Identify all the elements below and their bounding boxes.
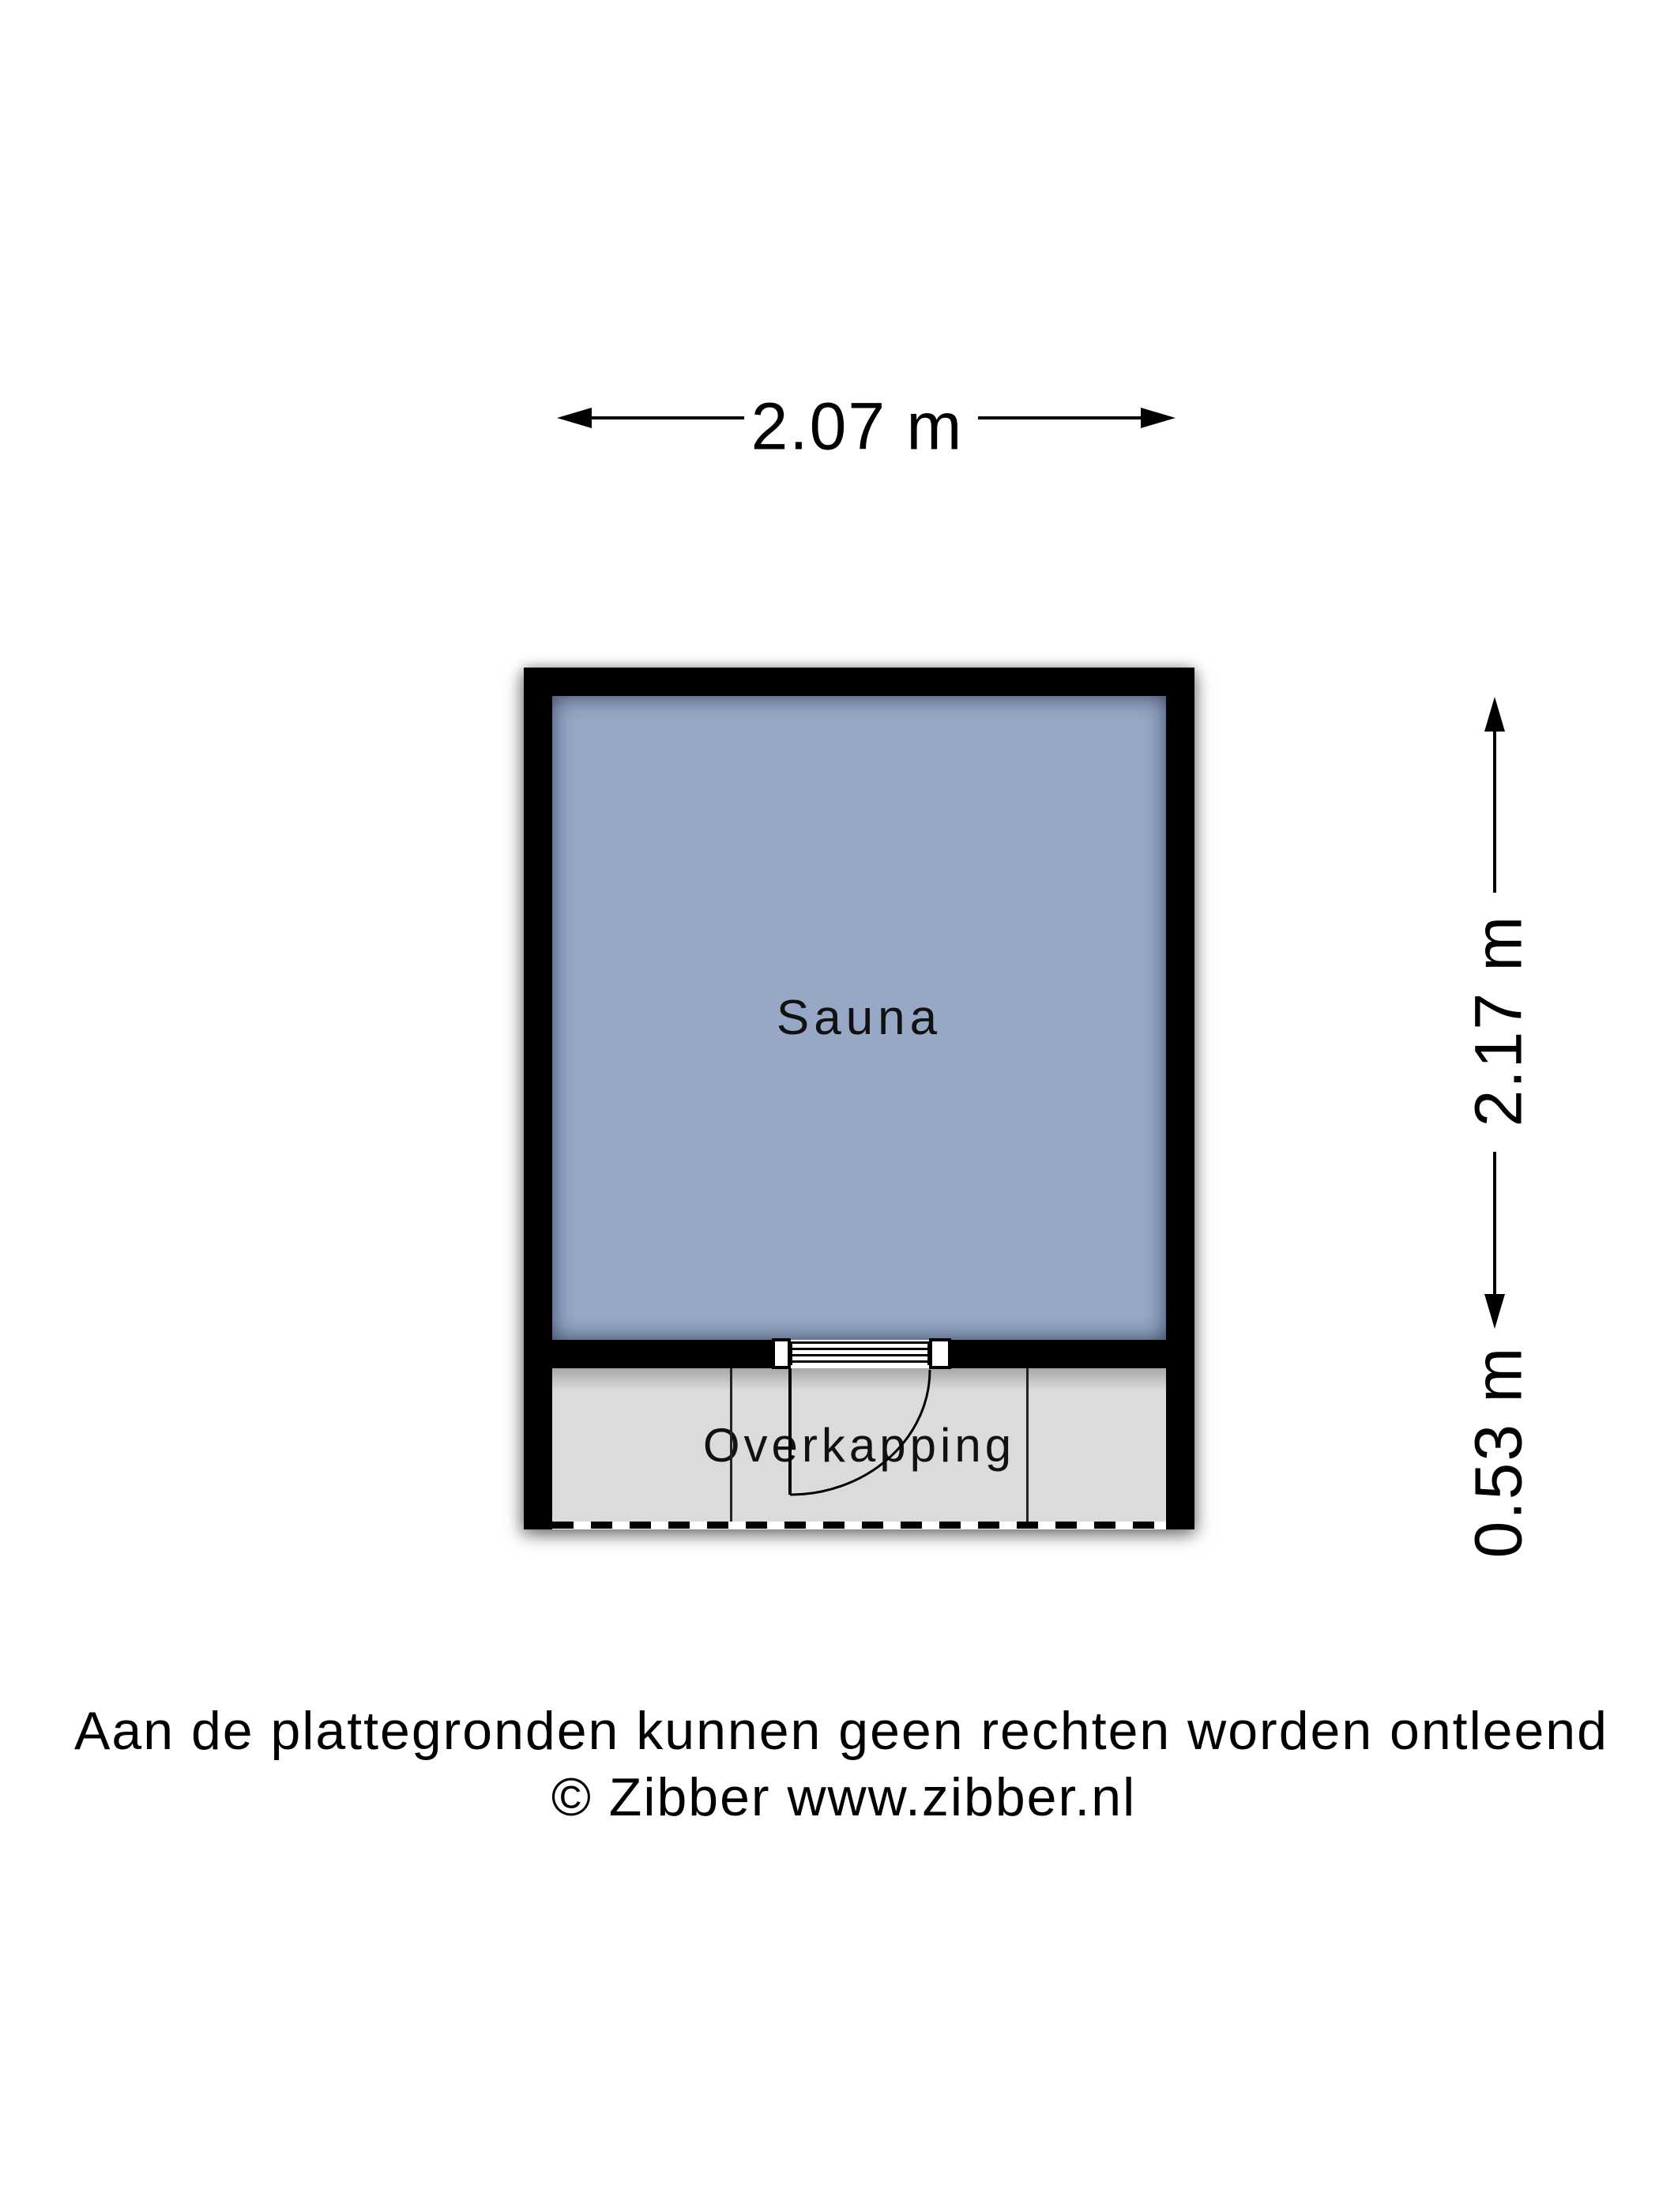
dimension-line [1493,1152,1496,1296]
dimension-overhang-label: 0.53 m [1461,1346,1537,1559]
arrow-right-icon [1141,408,1176,428]
dimension-line [1493,730,1496,893]
door-swing-arc [524,668,1194,1529]
dimension-height-label: 2.17 m [1461,915,1537,1127]
footer-copyright: © Zibber www.zibber.nl [551,1766,1136,1828]
footer-disclaimer: Aan de plattegronden kunnen geen rechten… [74,1700,1608,1762]
arrow-left-icon [557,408,592,428]
dimension-width-label: 2.07 m [751,389,964,465]
arrow-down-icon [1484,1294,1505,1329]
dimension-line [978,416,1142,419]
building-outline: Sauna Overkapping [524,668,1194,1529]
floorplan-canvas: 2.07 m 2.17 m 0.53 m Sauna Overkapping A… [0,0,1659,2212]
dimension-line [589,416,744,419]
arrow-up-icon [1484,697,1505,732]
open-edge-dashed-line [552,1522,1166,1529]
